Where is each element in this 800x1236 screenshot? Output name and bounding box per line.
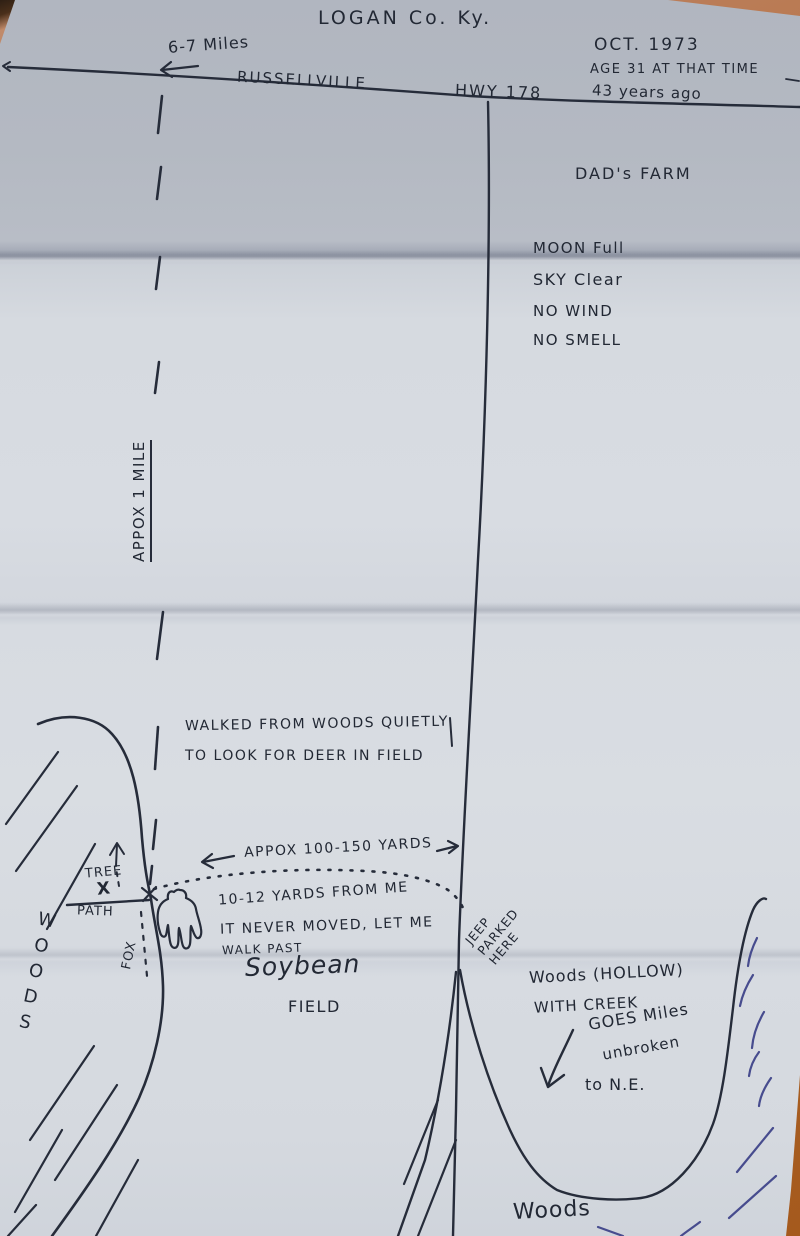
- sighting-date-label: OCT. 1973: [594, 36, 700, 56]
- highway-label: HWY 178: [455, 81, 543, 102]
- age-note-label: AGE 31 AT THAT TIME: [590, 63, 759, 78]
- field-label: FIELD: [288, 998, 341, 1016]
- fox-trail-dashed-line: [141, 912, 147, 976]
- dads-farm-label: DAD's FARM: [575, 165, 692, 183]
- bottom-woods-label: Woods: [512, 1196, 591, 1225]
- lower-left-woods-hatching: [8, 1046, 456, 1236]
- tree-x-mark: X: [96, 879, 112, 900]
- map-title: LOGAN Co. Ky.: [318, 8, 492, 30]
- sky-condition-label: SKY Clear: [533, 271, 623, 289]
- photo-of-hand-drawn-map: LOGAN Co. Ky. 6-7 Miles RUSSELLVILLE HWY…: [0, 0, 800, 1236]
- soybean-label: Soybean: [245, 950, 361, 983]
- wind-condition-label: NO WIND: [533, 303, 613, 320]
- hollow-left-edge-line: [398, 972, 456, 1236]
- creature-figure-outline: [158, 890, 202, 949]
- yards-east-arrow-icon: [437, 841, 458, 853]
- note-end-stroke: [450, 718, 452, 746]
- yards-west-arrow-icon: [202, 854, 234, 868]
- west-arrow-icon: [161, 62, 198, 77]
- moon-condition-label: MOON Full: [533, 240, 625, 257]
- map-drawing: [0, 0, 800, 1236]
- time-underline: [786, 79, 799, 81]
- walked-note-line2: TO LOOK FOR DEER IN FIELD: [185, 748, 424, 764]
- smell-condition-label: NO SMELL: [533, 332, 621, 349]
- left-woods-edge-line: [38, 717, 163, 1236]
- path-label: PATH: [77, 904, 114, 920]
- creek-direction-arrow-icon: [541, 1030, 573, 1087]
- left-woods-hatching: [6, 752, 95, 929]
- creek-note-line3: to N.E.: [585, 1076, 645, 1094]
- approx-one-mile-label: APPOX 1 MILE: [131, 440, 152, 562]
